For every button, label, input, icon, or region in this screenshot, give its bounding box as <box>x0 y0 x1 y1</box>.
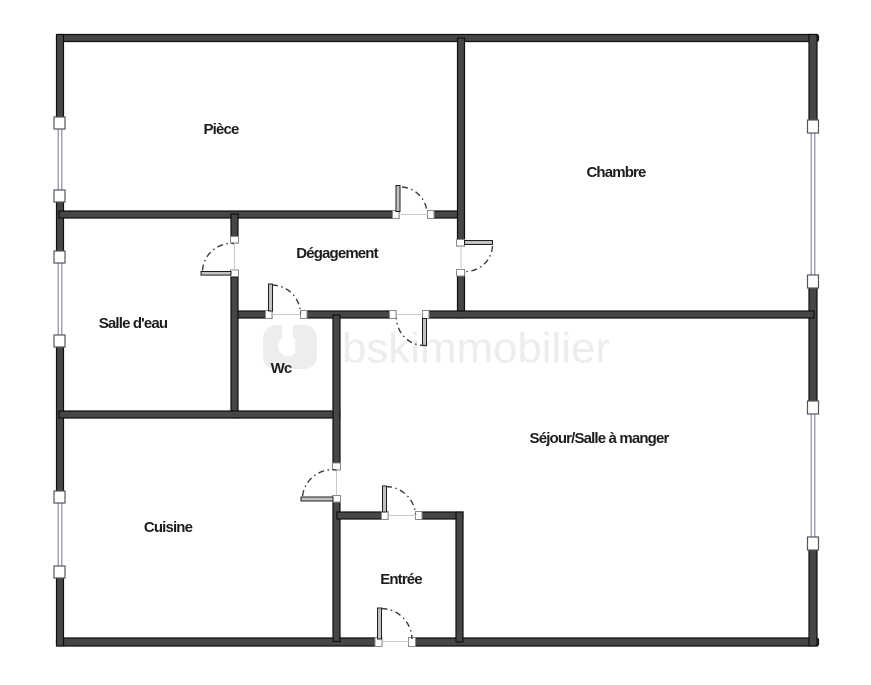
svg-text:Wc: Wc <box>271 360 292 377</box>
svg-text:Dégagement: Dégagement <box>296 245 378 262</box>
svg-text:Cuisine: Cuisine <box>144 519 193 536</box>
svg-text:Salle d'eau: Salle d'eau <box>99 315 168 332</box>
svg-text:Pièce: Pièce <box>204 121 239 138</box>
svg-text:Chambre: Chambre <box>586 164 646 181</box>
svg-text:Entrée: Entrée <box>380 571 422 588</box>
svg-text:Séjour/Salle à manger: Séjour/Salle à manger <box>530 430 670 447</box>
svg-text:bskimmobilier: bskimmobilier <box>342 325 610 373</box>
